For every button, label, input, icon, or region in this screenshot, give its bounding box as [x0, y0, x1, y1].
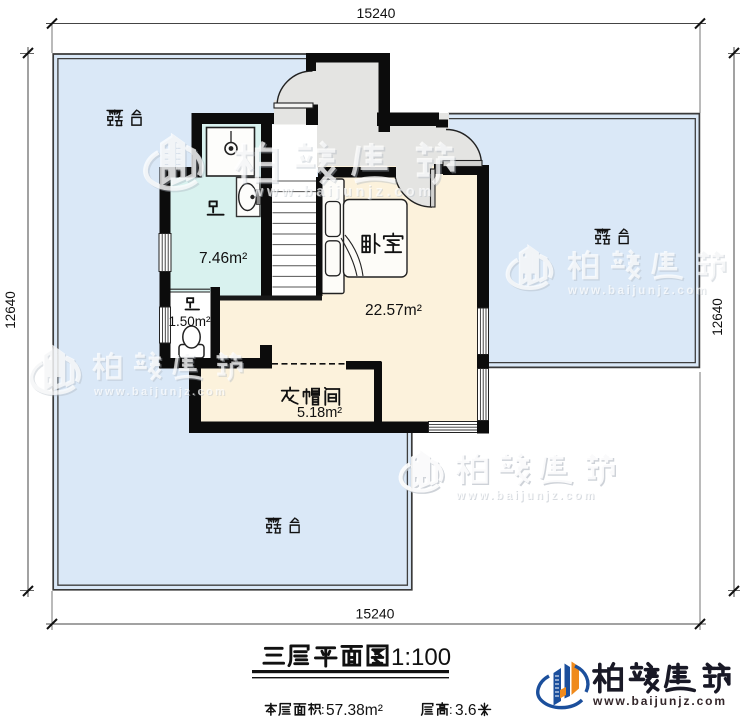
svg-text:3.6: 3.6	[455, 702, 477, 719]
svg-text:57.38m²: 57.38m²	[326, 702, 383, 719]
svg-text:www.baijunjz.com: www.baijunjz.com	[567, 285, 709, 297]
svg-text:www.baijunjz.com: www.baijunjz.com	[592, 694, 727, 708]
svg-text:7.46m²: 7.46m²	[199, 250, 247, 267]
svg-text:www.baijunjz.com: www.baijunjz.com	[251, 184, 435, 200]
svg-text::: :	[321, 702, 325, 717]
svg-text:15240: 15240	[357, 5, 396, 21]
svg-text:1:100: 1:100	[391, 644, 451, 671]
svg-text:15240: 15240	[356, 606, 395, 622]
svg-text:12640: 12640	[710, 298, 725, 336]
svg-text:1.50m²: 1.50m²	[169, 314, 212, 329]
svg-text:www.baijunjz.com: www.baijunjz.com	[455, 490, 597, 502]
svg-text:5.18m²: 5.18m²	[297, 405, 342, 421]
svg-text:www.baijunjz.com: www.baijunjz.com	[93, 386, 227, 398]
svg-text::: :	[449, 702, 453, 717]
svg-text:12640: 12640	[3, 291, 18, 329]
svg-text:22.57m²: 22.57m²	[365, 302, 422, 319]
